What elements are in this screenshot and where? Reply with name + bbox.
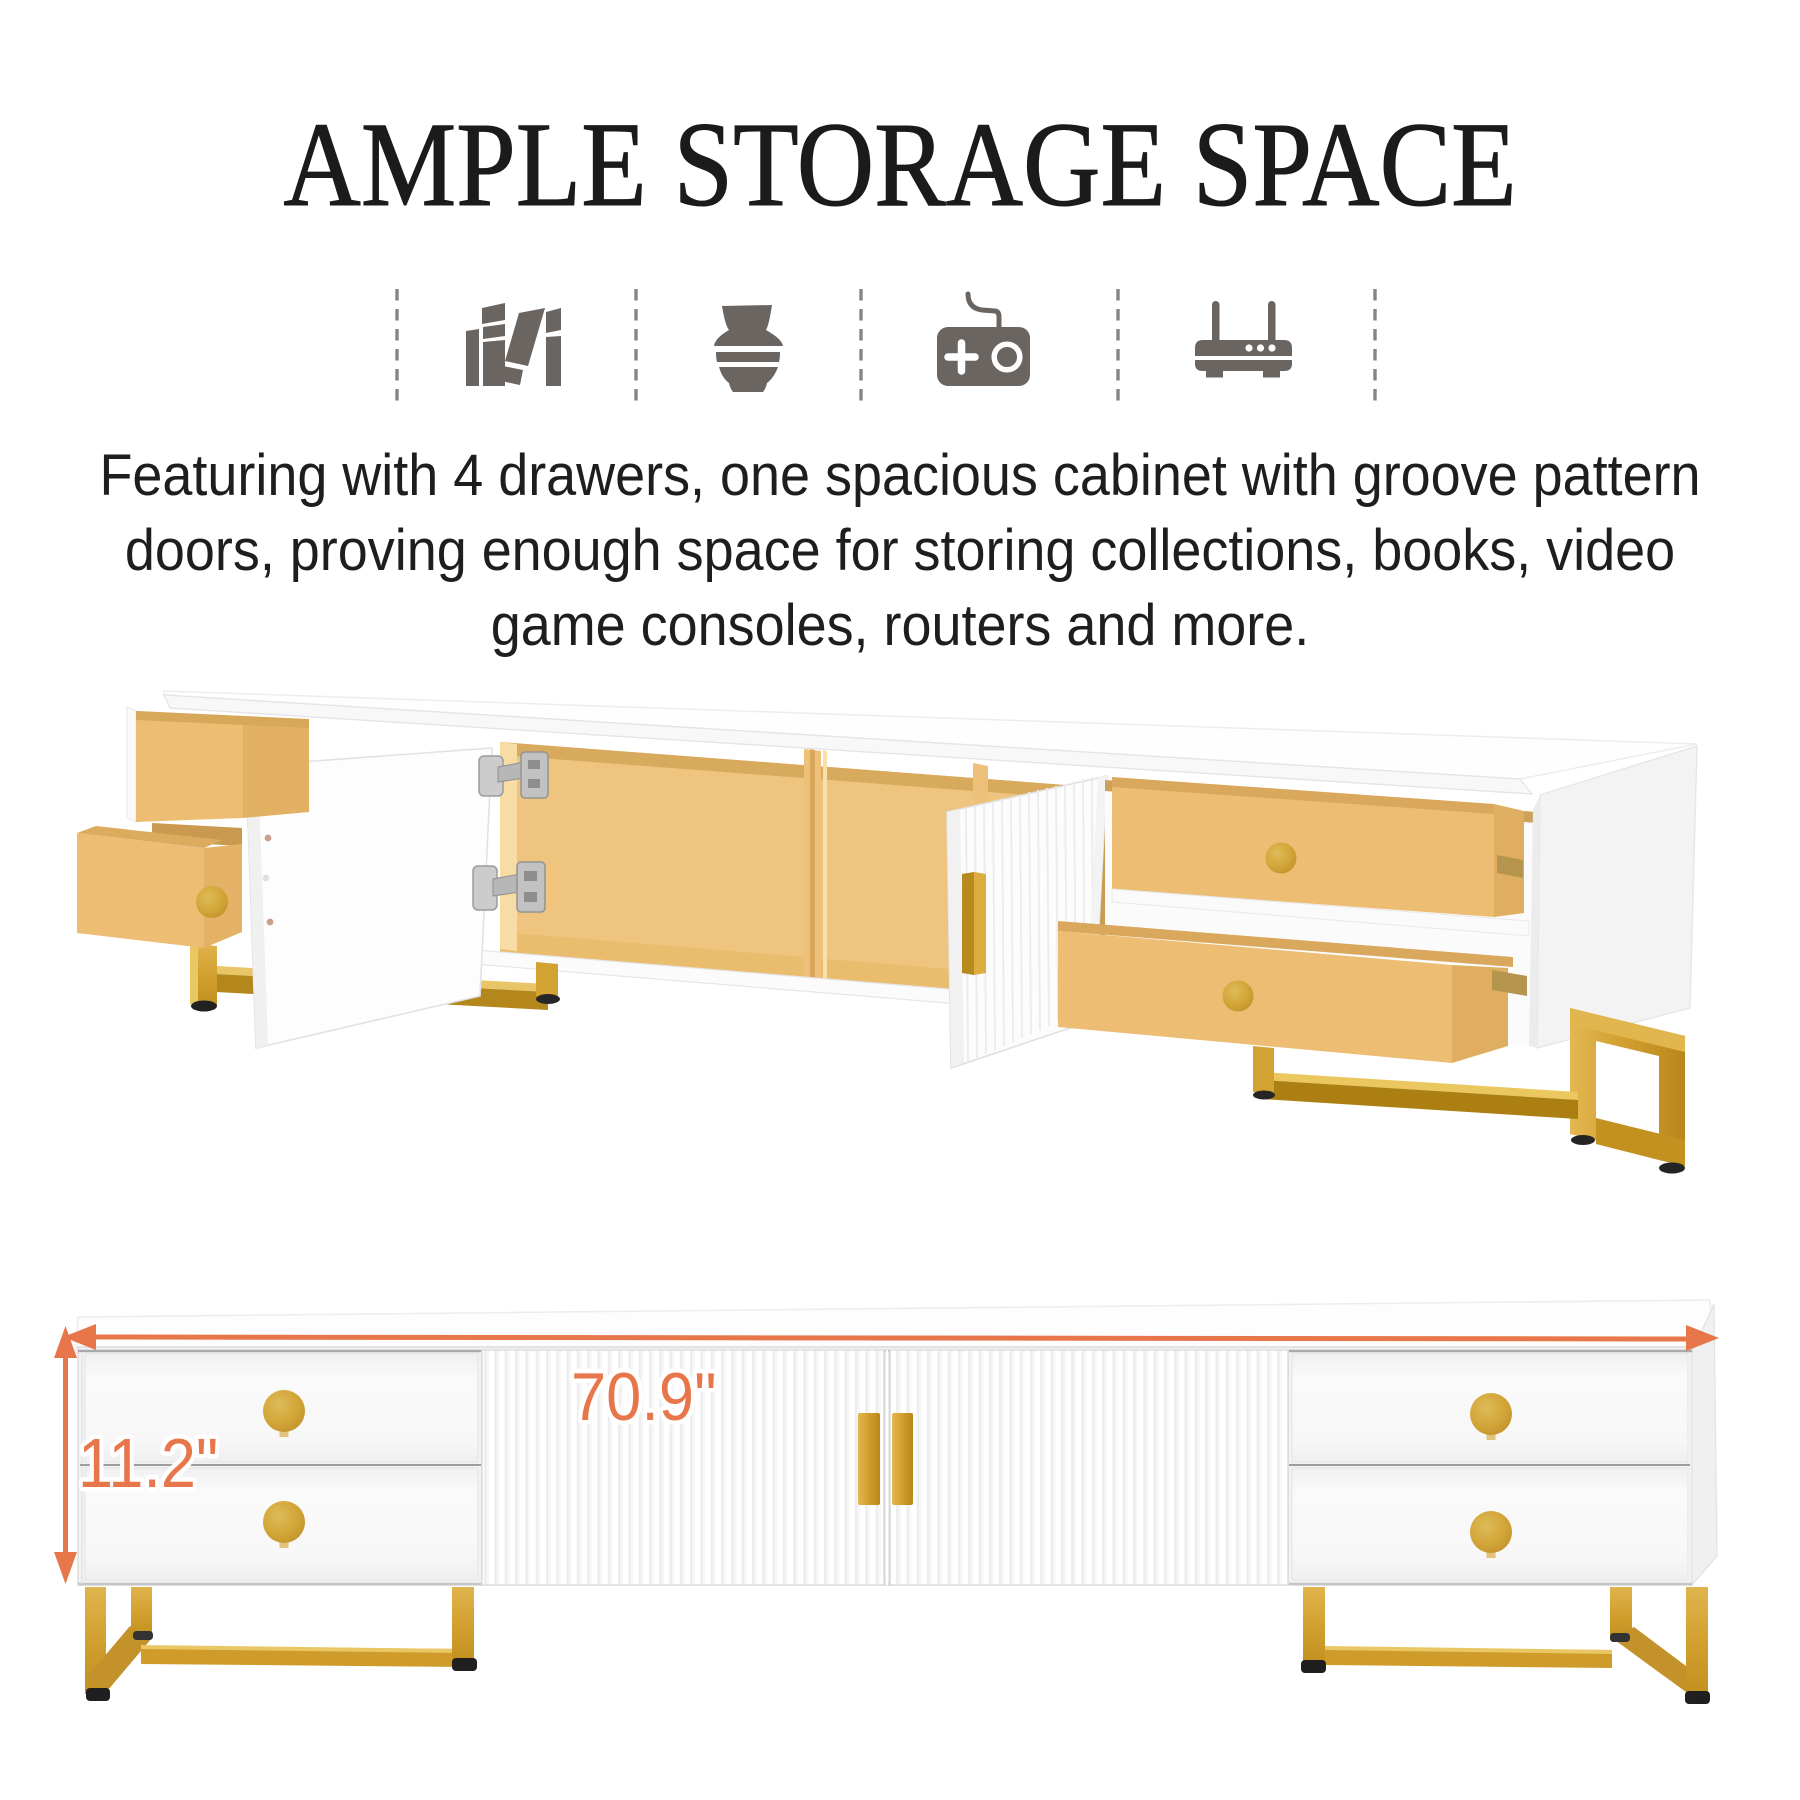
svg-text:11.2": 11.2" (78, 1425, 218, 1503)
svg-text:70.9": 70.9" (571, 1359, 717, 1435)
